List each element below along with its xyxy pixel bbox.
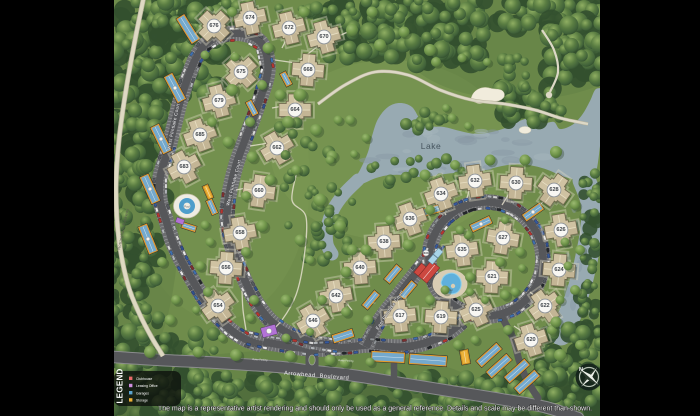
svg-text:679: 679 [214, 98, 223, 104]
svg-text:662: 662 [272, 145, 281, 151]
svg-text:622: 622 [540, 303, 549, 309]
svg-text:Storage: Storage [136, 399, 148, 403]
svg-text:633: 633 [423, 251, 428, 255]
svg-text:675: 675 [236, 69, 245, 75]
svg-text:617: 617 [395, 313, 404, 319]
svg-text:646: 646 [308, 318, 317, 324]
svg-text:LEGEND: LEGEND [116, 368, 125, 403]
svg-text:635: 635 [457, 247, 466, 253]
svg-text:Leasing Office: Leasing Office [136, 384, 158, 388]
svg-text:660: 660 [254, 188, 263, 194]
svg-text:626: 626 [556, 227, 565, 233]
svg-text:Garages: Garages [136, 391, 149, 395]
svg-text:636: 636 [405, 216, 414, 222]
svg-text:654: 654 [213, 303, 223, 309]
svg-text:The map is a representative ar: The map is a representative artist rende… [158, 406, 592, 413]
svg-text:634: 634 [436, 191, 446, 197]
svg-text:664: 664 [290, 107, 300, 113]
svg-text:656: 656 [221, 265, 230, 271]
svg-text:640: 640 [355, 265, 364, 271]
svg-text:Clubhouse: Clubhouse [136, 377, 152, 381]
svg-text:674: 674 [245, 15, 255, 21]
svg-text:638: 638 [379, 239, 388, 245]
svg-text:632: 632 [470, 178, 479, 184]
svg-text:685: 685 [195, 132, 204, 138]
svg-text:670: 670 [319, 34, 328, 40]
svg-text:642: 642 [331, 293, 340, 299]
svg-text:619: 619 [436, 314, 445, 320]
svg-text:624: 624 [554, 267, 564, 273]
svg-text:620: 620 [526, 337, 535, 343]
svg-text:N: N [579, 367, 583, 373]
svg-text:630: 630 [511, 180, 520, 186]
svg-text:672: 672 [284, 25, 293, 31]
svg-text:621: 621 [487, 274, 496, 280]
svg-text:668: 668 [303, 67, 312, 73]
svg-text:625: 625 [471, 307, 480, 313]
svg-text:676: 676 [209, 23, 218, 29]
svg-text:683: 683 [179, 164, 188, 170]
svg-text:627: 627 [498, 235, 507, 241]
svg-text:628: 628 [549, 187, 558, 193]
svg-text:Lake: Lake [421, 141, 441, 151]
svg-text:658: 658 [235, 230, 244, 236]
svg-text:Pool: Pool [184, 205, 190, 209]
